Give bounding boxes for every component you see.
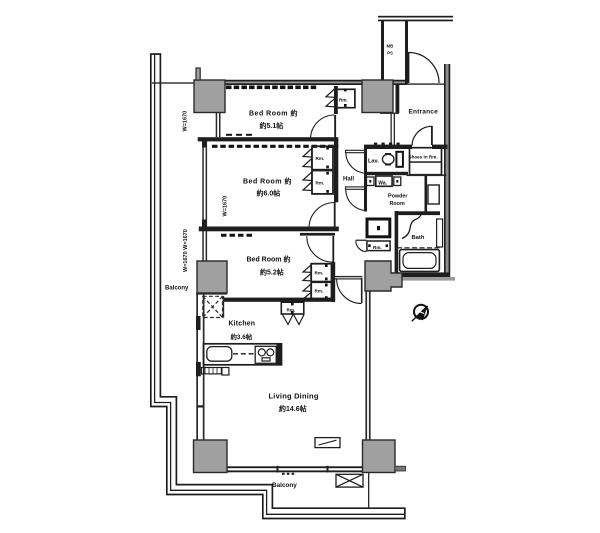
svg-text:Balcony: Balcony bbox=[165, 286, 189, 292]
svg-text:Hall: Hall bbox=[343, 177, 354, 183]
svg-text:Rm.: Rm. bbox=[373, 245, 382, 250]
svg-text:MB: MB bbox=[387, 44, 394, 49]
svg-text:Entrance: Entrance bbox=[409, 108, 439, 115]
svg-text:Lav.: Lav. bbox=[368, 158, 379, 164]
svg-text:約5.1帖: 約5.1帖 bbox=[260, 121, 284, 130]
svg-text:W=1670 W=1670: W=1670 W=1670 bbox=[183, 229, 189, 272]
svg-text:Room: Room bbox=[390, 201, 405, 207]
svg-text:W=1670: W=1670 bbox=[183, 111, 189, 132]
svg-text:Balcony: Balcony bbox=[272, 482, 297, 489]
svg-text:約14.6帖: 約14.6帖 bbox=[279, 404, 307, 413]
svg-text:Bed Room 約: Bed Room 約 bbox=[243, 177, 292, 186]
svg-text:Rm.: Rm. bbox=[315, 271, 324, 276]
svg-text:Rm.: Rm. bbox=[316, 156, 325, 161]
svg-text:W=1670: W=1670 bbox=[222, 196, 228, 217]
svg-text:Living Dining: Living Dining bbox=[269, 392, 319, 401]
svg-text:Rm.: Rm. bbox=[287, 308, 296, 313]
svg-text:Rm.: Rm. bbox=[316, 181, 325, 186]
svg-text:Kitchen: Kitchen bbox=[229, 321, 256, 328]
svg-text:Powder: Powder bbox=[388, 194, 408, 200]
svg-text:約5.2帖: 約5.2帖 bbox=[260, 268, 284, 277]
svg-text:約3.6帖: 約3.6帖 bbox=[231, 332, 253, 341]
svg-text:Bath: Bath bbox=[412, 235, 425, 241]
svg-text:Rm.: Rm. bbox=[339, 98, 348, 103]
svg-text:Shoes in Rm.: Shoes in Rm. bbox=[409, 155, 438, 160]
svg-text:約6.0帖: 約6.0帖 bbox=[257, 189, 281, 198]
svg-text:Rm.: Rm. bbox=[315, 289, 324, 294]
svg-text:Bed Room 約: Bed Room 約 bbox=[249, 109, 298, 118]
svg-text:Bed Room 約: Bed Room 約 bbox=[247, 255, 291, 264]
svg-text:Wa.: Wa. bbox=[378, 180, 387, 186]
svg-text:PS: PS bbox=[387, 51, 393, 56]
